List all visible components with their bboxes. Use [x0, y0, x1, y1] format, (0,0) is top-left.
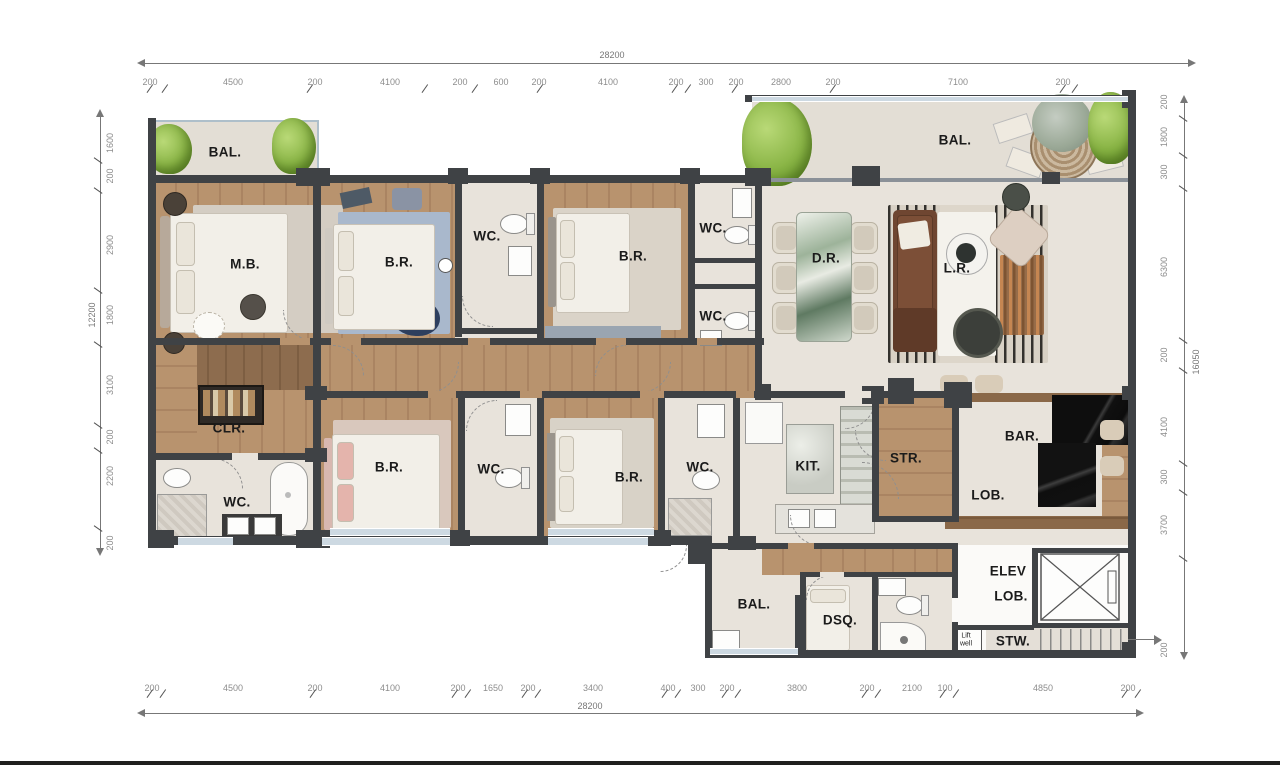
door-arc	[660, 545, 687, 572]
wall-stw-top	[958, 625, 1034, 630]
wall-v	[458, 398, 465, 538]
bar-counter-lower	[1038, 443, 1096, 507]
column-block	[688, 536, 712, 564]
dim-top-seg: 4100	[598, 77, 618, 87]
lobby-wood-band	[945, 516, 1128, 529]
dim-top-seg: 4100	[380, 77, 400, 87]
dim-tick	[160, 689, 167, 698]
dim-tick	[1179, 460, 1188, 467]
door-gap	[788, 543, 814, 549]
column-block	[948, 386, 964, 402]
dim-tick	[875, 689, 882, 698]
br-graybot-pillow	[559, 476, 574, 512]
dim-bottom-seg: 1650	[483, 683, 503, 693]
shower	[668, 498, 712, 536]
dim-bottom-seg: 200	[520, 683, 535, 693]
room-label-dining-room: D.R.	[812, 251, 840, 266]
dim-tick	[94, 341, 103, 348]
dim-tick	[1179, 367, 1188, 374]
dim-bottom-seg: 3400	[583, 683, 603, 693]
br-graybot-headboard	[547, 433, 555, 521]
column-block	[448, 168, 468, 184]
br-blue-pillow	[338, 276, 354, 316]
door-gap	[331, 338, 361, 345]
dining-table	[796, 212, 852, 342]
shower-drain	[900, 636, 908, 644]
room-label-wc-bottom-right: WC.	[686, 460, 713, 475]
lift-well-label-line2: well	[960, 641, 972, 648]
dim-tick	[1179, 185, 1188, 192]
br-pink-pillow	[337, 442, 354, 480]
column-block	[296, 168, 330, 186]
br-graytop-bench	[545, 326, 661, 338]
room-label-store: STR.	[890, 451, 922, 466]
sink	[227, 517, 249, 535]
dim-tick	[94, 422, 103, 429]
clr-wardrobe-contents	[203, 390, 255, 416]
column-block	[755, 384, 771, 400]
dim-tick	[1072, 84, 1079, 93]
column-block	[1122, 386, 1136, 400]
dim-right-seg: 300	[1159, 164, 1169, 179]
door-gap	[640, 391, 664, 398]
room-label-elev-line1: ELEV	[990, 564, 1026, 579]
door-gap	[468, 338, 490, 345]
dim-tick	[535, 689, 542, 698]
dim-bottom-total: 28200	[577, 701, 602, 711]
lr-stool	[975, 375, 1003, 393]
dim-line-right	[1184, 98, 1185, 656]
dim-left-seg: 2900	[105, 235, 115, 255]
column-block	[745, 168, 771, 186]
dim-tick	[1135, 689, 1142, 698]
dim-left-seg: 3100	[105, 375, 115, 395]
toilet	[896, 596, 923, 615]
wall-v	[313, 175, 321, 343]
toilet	[724, 226, 750, 244]
column-block	[448, 530, 470, 546]
dim-right-seg: 200	[1159, 347, 1169, 362]
dim-left-seg: 1600	[105, 133, 115, 153]
wall-corridor-top	[148, 338, 764, 345]
sink	[878, 578, 906, 596]
door-gap	[520, 391, 542, 398]
column-block	[680, 168, 700, 184]
dim-tick	[94, 157, 103, 164]
dim-right-seg: 200	[1159, 94, 1169, 109]
dim-top-seg: 600	[493, 77, 508, 87]
wall-shaft-bottom	[1032, 623, 1128, 628]
dim-arrow	[1188, 59, 1196, 67]
wall-v	[733, 398, 740, 545]
room-label-bedroom-graybot: B.R.	[615, 470, 643, 485]
dim-tick	[162, 84, 169, 93]
dim-arrow	[96, 548, 104, 556]
dim-bottom-seg: 4100	[380, 683, 400, 693]
dim-left-seg: 200	[105, 429, 115, 444]
sink-vanity	[697, 404, 725, 438]
dim-top-seg: 7100	[948, 77, 968, 87]
room-label-wc-tr2: WC.	[699, 309, 726, 324]
dim-bottom-seg: 4850	[1033, 683, 1053, 693]
dim-bottom-seg: 200	[1120, 683, 1135, 693]
dim-arrow	[96, 109, 104, 117]
dim-left-seg: 200	[105, 535, 115, 550]
dim-top-seg: 200	[452, 77, 467, 87]
window-band	[548, 537, 648, 546]
column-block	[1122, 642, 1136, 658]
sink-vanity	[505, 404, 531, 436]
room-label-elev-line2: LOB.	[994, 589, 1027, 604]
dim-tick	[472, 84, 479, 93]
dim-right-seg: 6300	[1159, 257, 1169, 277]
toilet	[724, 312, 750, 330]
room-label-wc-top: WC.	[473, 229, 500, 244]
mb-bed-headboard	[160, 216, 170, 328]
door-gap	[952, 598, 958, 622]
room-label-bar: BAR.	[1005, 429, 1039, 444]
room-label-wc-bottom-left: WC.	[477, 462, 504, 477]
br-blue-ball	[438, 258, 453, 273]
dim-bottom-seg: 3800	[787, 683, 807, 693]
room-label-stairway: STW.	[996, 634, 1030, 649]
wall-exterior-right	[1128, 95, 1136, 658]
wall-kit-str	[872, 398, 879, 520]
window-band	[330, 528, 450, 536]
wall-v	[537, 175, 544, 343]
br-graytop-pillow	[560, 262, 575, 300]
sink-vanity	[732, 188, 752, 218]
room-label-dsq: DSQ.	[823, 613, 857, 628]
dim-tick	[1179, 152, 1188, 159]
dim-bottom-seg: 4500	[223, 683, 243, 693]
dim-right-seg: 300	[1159, 469, 1169, 484]
mb-pillow	[176, 270, 195, 314]
column-block	[305, 448, 327, 462]
wall-v	[537, 398, 544, 538]
balcony-top-right-rail	[752, 96, 1128, 102]
dim-right-total: 16050	[1191, 349, 1201, 374]
bar-stool	[1100, 456, 1124, 476]
mb-decor-lamp	[193, 312, 225, 340]
column-block	[148, 530, 174, 548]
plant-sage-tree	[1032, 94, 1092, 152]
bar-stool	[1100, 420, 1124, 440]
lr-rug-orange	[1000, 255, 1044, 335]
dining-chair	[850, 222, 878, 254]
dim-arrow	[137, 709, 145, 717]
dim-top-seg: 4500	[223, 77, 243, 87]
lr-chaise	[893, 308, 937, 352]
door-gap	[736, 391, 754, 398]
dim-arrow	[1136, 709, 1144, 717]
dim-arrow	[1180, 652, 1188, 660]
toilet-tank	[526, 213, 535, 235]
wall-h	[688, 258, 762, 263]
door-gap	[232, 453, 258, 460]
lr-round-table	[953, 308, 1003, 358]
column-block	[852, 166, 880, 186]
dim-top-seg: 2800	[771, 77, 791, 87]
door-gap	[280, 338, 310, 345]
window-band	[322, 537, 450, 546]
wall-glass-balcony	[762, 178, 1128, 182]
window-band	[710, 648, 798, 655]
dim-top-seg: 300	[698, 77, 713, 87]
dim-bottom-seg: 300	[690, 683, 705, 693]
mb-pillow	[176, 222, 195, 266]
br-graytop-pillow	[560, 220, 575, 258]
column-block	[530, 168, 550, 184]
wall-shaft-top	[1032, 548, 1128, 553]
room-label-kitchen: KIT.	[795, 459, 820, 474]
wall-v	[313, 343, 321, 538]
br-blue-pillow	[338, 231, 354, 271]
dim-tick	[685, 84, 692, 93]
closet-left-band	[155, 345, 197, 453]
lr-side-table	[1002, 183, 1030, 211]
br-pink-pillow	[337, 484, 354, 522]
dim-line-top	[140, 63, 1192, 64]
dim-left-seg: 1800	[105, 305, 115, 325]
wall-h	[455, 328, 544, 334]
dim-arrow	[1180, 95, 1188, 103]
dim-tick	[422, 84, 429, 93]
dim-top-total: 28200	[599, 50, 624, 60]
wall-v	[455, 175, 462, 337]
lr-sofa-pillow	[897, 220, 930, 250]
wall-dsq-wc	[872, 577, 878, 653]
elevator-shaft-x	[1040, 553, 1120, 621]
dim-tick	[94, 187, 103, 194]
dim-tick	[1179, 337, 1188, 344]
dim-right-seg: 4100	[1159, 417, 1169, 437]
column-block	[728, 536, 756, 550]
br-blue-toy	[392, 188, 422, 210]
dim-tick	[735, 689, 742, 698]
toilet	[163, 468, 191, 488]
screenshot-bottom-bar	[0, 761, 1280, 765]
dim-right-seg: 1800	[1159, 127, 1169, 147]
dsq-corridor-wood	[800, 545, 875, 575]
wall-dsq-left	[800, 577, 806, 653]
lift-well-label-line1: Lift	[961, 633, 970, 640]
door-gap	[845, 391, 871, 398]
room-label-bedroom-pink: B.R.	[375, 460, 403, 475]
dim-tick	[1179, 555, 1188, 562]
wall-str-bottom	[872, 516, 959, 522]
dim-line-left	[100, 112, 101, 552]
room-label-bedroom-graytop: B.R.	[619, 249, 647, 264]
dim-top-seg: 200	[531, 77, 546, 87]
room-label-balcony-bottom: BAL.	[738, 597, 771, 612]
br-graytop-headboard	[548, 217, 556, 307]
column-block	[1042, 172, 1060, 184]
room-label-balcony-top-left: BAL.	[209, 145, 242, 160]
door-gap	[428, 391, 456, 398]
sink	[254, 517, 276, 535]
sink-vanity	[508, 246, 532, 276]
room-label-balcony-top-right: BAL.	[939, 133, 972, 148]
dim-left-seg: 200	[105, 168, 115, 183]
window-band	[548, 528, 654, 536]
room-label-lobby: LOB.	[971, 488, 1004, 503]
mb-pouf	[240, 294, 266, 320]
dim-bottom-seg: 2100	[902, 683, 922, 693]
dim-bottom-seg: 400	[660, 683, 675, 693]
br-blue-headboard	[325, 228, 333, 324]
dim-right-seg: 3700	[1159, 515, 1169, 535]
plant-shrub	[272, 118, 316, 174]
dim-tick	[1179, 115, 1188, 122]
toilet	[500, 214, 528, 234]
dim-right-seg: 200	[1159, 642, 1169, 657]
stairs	[1040, 629, 1128, 651]
floor-plan-canvas: BAL. M.B. B.R. WC. B.R. WC. WC. D.R. L.R…	[0, 0, 1280, 765]
dim-left-seg: 2200	[105, 466, 115, 486]
door-gap	[820, 572, 844, 577]
toilet-tank	[521, 467, 530, 489]
dining-chair	[850, 262, 878, 294]
dim-tick	[1179, 489, 1188, 496]
wall-h	[688, 284, 762, 289]
wall-elevlob-shaft	[1032, 548, 1038, 628]
dim-tick	[94, 447, 103, 454]
dim-tick	[953, 689, 960, 698]
room-label-master-bedroom: M.B.	[230, 257, 260, 272]
door-gap	[596, 338, 626, 345]
room-label-living-room: L.R.	[944, 261, 971, 276]
dim-left-total: 12200	[87, 302, 97, 327]
wall-v	[658, 398, 665, 538]
dim-bottom-seg: 200	[450, 683, 465, 693]
dim-tick	[465, 689, 472, 698]
door-gap	[697, 338, 717, 345]
room-label-wc-master: WC.	[223, 495, 250, 510]
dim-line-bottom	[140, 713, 1140, 714]
dim-tick	[675, 689, 682, 698]
toilet-tank	[921, 595, 929, 616]
dim-tick	[94, 287, 103, 294]
dim-tick	[94, 525, 103, 532]
room-label-bedroom-blue: B.R.	[385, 255, 413, 270]
room-label-wc-tr1: WC.	[699, 221, 726, 236]
bathtub-drain	[285, 492, 291, 498]
elevator-shaft	[1040, 553, 1120, 621]
kitchen-fridge	[745, 402, 783, 444]
dim-arrow	[137, 59, 145, 67]
mb-nightstand	[163, 192, 187, 216]
room-label-closet: CLR.	[213, 421, 246, 436]
dining-chair	[850, 302, 878, 334]
br-graybot-pillow	[559, 436, 574, 472]
column-block	[305, 386, 327, 400]
window-band	[178, 537, 233, 546]
wall-str-lob	[952, 391, 959, 522]
